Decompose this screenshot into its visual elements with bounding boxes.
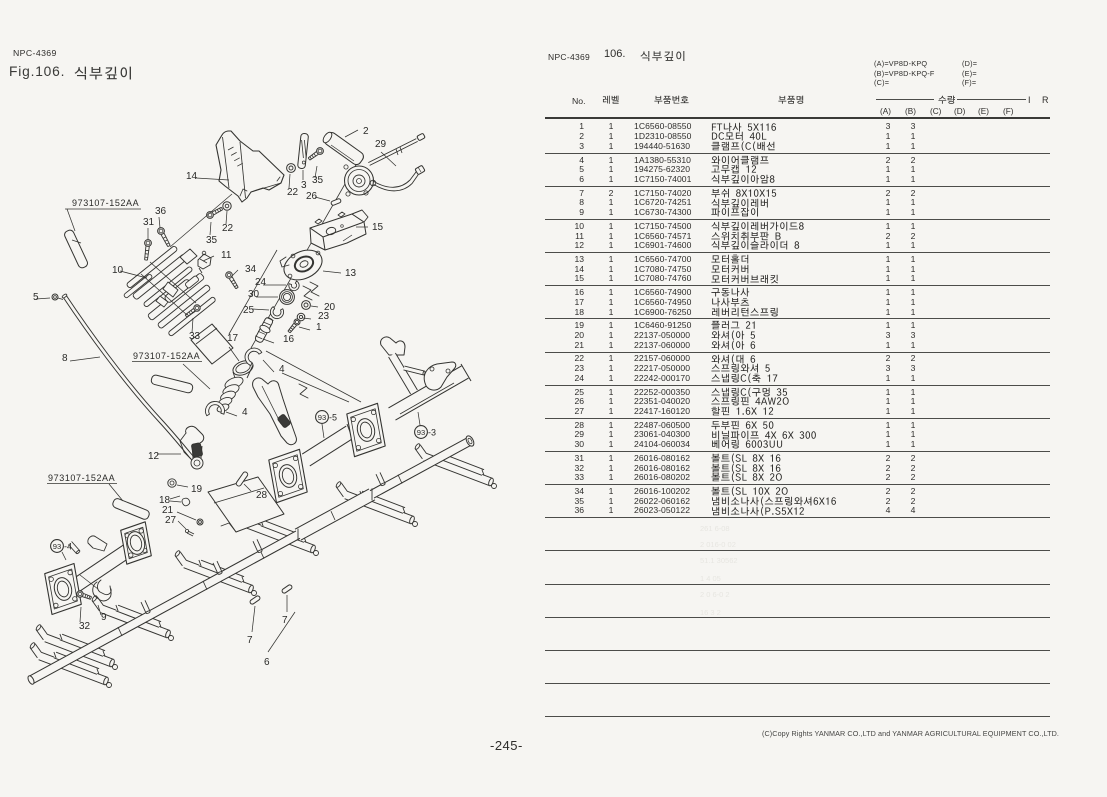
svg-text:22: 22 [287,187,299,198]
svg-text:27: 27 [165,515,177,526]
svg-text:26: 26 [306,191,318,202]
svg-text:7: 7 [247,635,253,646]
svg-text:34: 34 [245,264,257,275]
svg-text:4: 4 [242,407,248,418]
svg-text:9: 9 [101,612,107,623]
svg-text:8: 8 [62,353,68,364]
svg-text:29: 29 [375,139,387,150]
svg-text:17: 17 [227,333,239,344]
svg-text:973107-152AA: 973107-152AA [72,198,139,208]
svg-text:35: 35 [206,235,218,246]
svg-text:-5: -5 [329,412,337,422]
svg-text:-4: -4 [64,541,72,551]
svg-text:13: 13 [345,268,357,279]
svg-text:14: 14 [186,171,198,182]
svg-text:25: 25 [243,305,255,316]
svg-text:5: 5 [33,292,39,303]
svg-text:31: 31 [143,217,155,228]
svg-text:93: 93 [318,413,326,422]
svg-text:6: 6 [264,657,270,668]
svg-text:7: 7 [282,615,288,626]
svg-text:1: 1 [316,322,322,333]
svg-text:24: 24 [255,277,267,288]
svg-text:3: 3 [301,180,307,191]
svg-text:93: 93 [417,428,425,437]
svg-text:2: 2 [363,126,369,137]
svg-text:22: 22 [222,223,234,234]
svg-text:30: 30 [248,289,260,300]
svg-text:32: 32 [79,621,91,632]
svg-text:23: 23 [318,311,330,322]
svg-text:973107-152AA: 973107-152AA [133,351,200,361]
svg-text:4: 4 [279,364,285,375]
svg-text:12: 12 [148,451,160,462]
svg-text:28: 28 [256,490,268,501]
svg-text:15: 15 [372,222,384,233]
svg-text:36: 36 [155,206,167,217]
svg-text:35: 35 [312,175,324,186]
svg-text:-3: -3 [428,427,436,437]
svg-text:973107-152AA: 973107-152AA [48,473,115,483]
svg-text:19: 19 [191,484,203,495]
svg-text:10: 10 [112,265,124,276]
svg-text:93: 93 [53,542,61,551]
svg-text:16: 16 [283,334,295,345]
svg-text:11: 11 [221,250,232,261]
svg-text:33: 33 [189,331,201,342]
